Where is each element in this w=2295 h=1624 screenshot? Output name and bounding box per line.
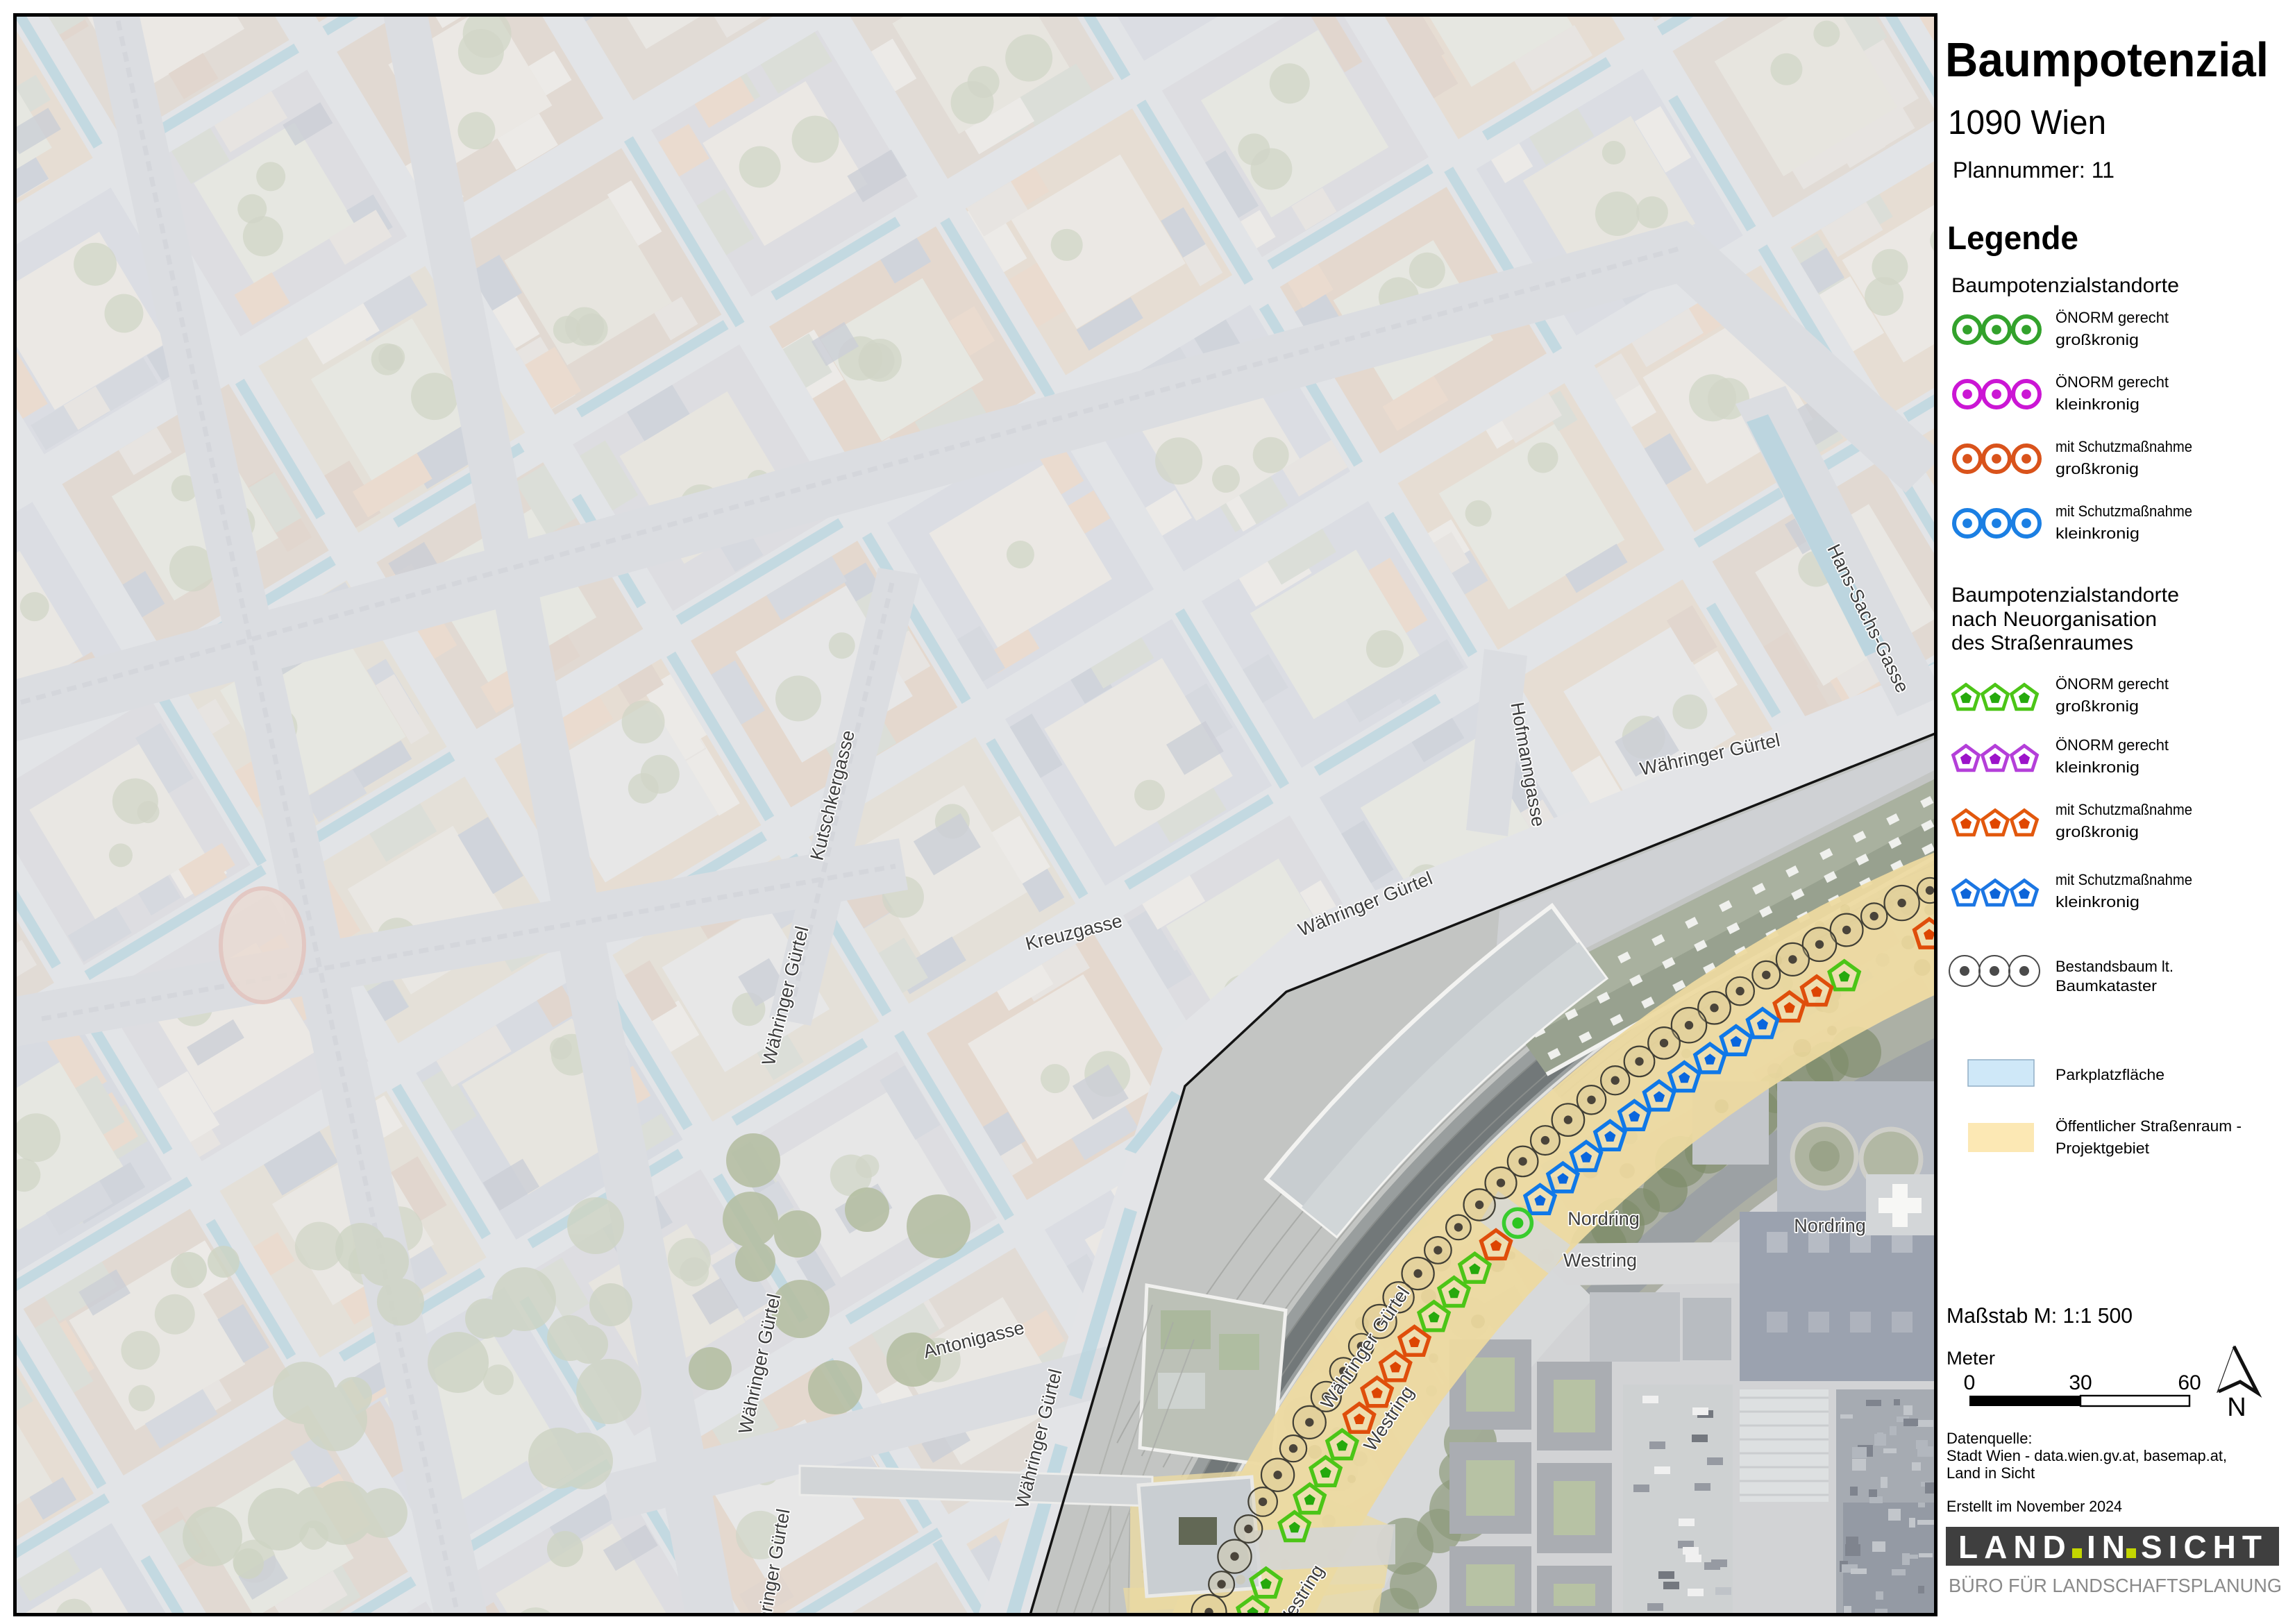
- svg-text:Bestandsbaum lt.: Bestandsbaum lt.: [2056, 958, 2174, 975]
- svg-text:Baumpotenzialstandorte: Baumpotenzialstandorte: [1951, 584, 2179, 607]
- svg-text:Baumpotenzialstandorte: Baumpotenzialstandorte: [1951, 274, 2179, 297]
- svg-text:60: 60: [2178, 1371, 2201, 1394]
- svg-text:kleinkronig: kleinkronig: [2056, 396, 2140, 413]
- svg-text:N: N: [2227, 1393, 2246, 1422]
- svg-text:kleinkronig: kleinkronig: [2056, 893, 2140, 911]
- svg-text:Maßstab M: 1:1 500: Maßstab M: 1:1 500: [1947, 1303, 2133, 1328]
- svg-text:Erstellt im November 2024: Erstellt im November 2024: [1947, 1498, 2122, 1515]
- svg-text:ÖNORM gerecht: ÖNORM gerecht: [2056, 736, 2169, 754]
- svg-text:Westring: Westring: [1563, 1250, 1637, 1271]
- svg-text:kleinkronig: kleinkronig: [2056, 525, 2140, 542]
- svg-text:Baumkataster: Baumkataster: [2056, 977, 2157, 995]
- svg-text:Stadt Wien - data.wien.gv.at,: Stadt Wien - data.wien.gv.at, basemap.at…: [1947, 1447, 2227, 1464]
- svg-text:0: 0: [1964, 1371, 1976, 1394]
- svg-text:Parkplatzfläche: Parkplatzfläche: [2056, 1066, 2164, 1083]
- svg-text:ÖNORM gerecht: ÖNORM gerecht: [2056, 309, 2169, 326]
- svg-text:Öffentlicher Straßenraum -: Öffentlicher Straßenraum -: [2056, 1117, 2242, 1135]
- svg-text:großkronig: großkronig: [2056, 331, 2139, 348]
- svg-text:Plannummer: 11: Plannummer: 11: [1953, 158, 2115, 183]
- svg-text:LAND: LAND: [1958, 1529, 2072, 1565]
- svg-text:Projektgebiet: Projektgebiet: [2056, 1140, 2149, 1157]
- svg-text:großkronig: großkronig: [2056, 697, 2139, 715]
- svg-text:kleinkronig: kleinkronig: [2056, 759, 2140, 776]
- svg-text:ÖNORM gerecht: ÖNORM gerecht: [2056, 675, 2169, 693]
- svg-text:großkronig: großkronig: [2056, 823, 2139, 840]
- svg-text:des Straßenraumes: des Straßenraumes: [1951, 632, 2133, 654]
- svg-text:IN: IN: [2087, 1529, 2131, 1565]
- svg-text:1090 Wien: 1090 Wien: [1948, 104, 2106, 142]
- svg-text:mit Schutzmaßnahme: mit Schutzmaßnahme: [2056, 871, 2192, 888]
- svg-text:ÖNORM gerecht: ÖNORM gerecht: [2056, 373, 2169, 391]
- svg-text:30: 30: [2069, 1371, 2092, 1394]
- svg-text:großkronig: großkronig: [2056, 460, 2139, 477]
- svg-text:Land in Sicht: Land in Sicht: [1947, 1464, 2035, 1482]
- svg-text:Meter: Meter: [1947, 1348, 1995, 1369]
- svg-text:mit Schutzmaßnahme: mit Schutzmaßnahme: [2056, 801, 2192, 818]
- svg-text:Nordring: Nordring: [1567, 1208, 1640, 1229]
- svg-text:mit Schutzmaßnahme: mit Schutzmaßnahme: [2056, 438, 2192, 455]
- svg-text:BÜRO FÜR LANDSCHAFTSPLANUNG: BÜRO FÜR LANDSCHAFTSPLANUNG: [1949, 1575, 2282, 1596]
- svg-text:Legende: Legende: [1947, 219, 2078, 256]
- svg-text:nach Neuorganisation: nach Neuorganisation: [1951, 608, 2157, 631]
- svg-text:SICHT: SICHT: [2141, 1529, 2268, 1565]
- svg-text:Nordring: Nordring: [1794, 1215, 1866, 1236]
- svg-text:Datenquelle:: Datenquelle:: [1947, 1430, 2033, 1447]
- svg-text:mit Schutzmaßnahme: mit Schutzmaßnahme: [2056, 502, 2192, 520]
- svg-text:Baumpotenzial: Baumpotenzial: [1945, 33, 2269, 87]
